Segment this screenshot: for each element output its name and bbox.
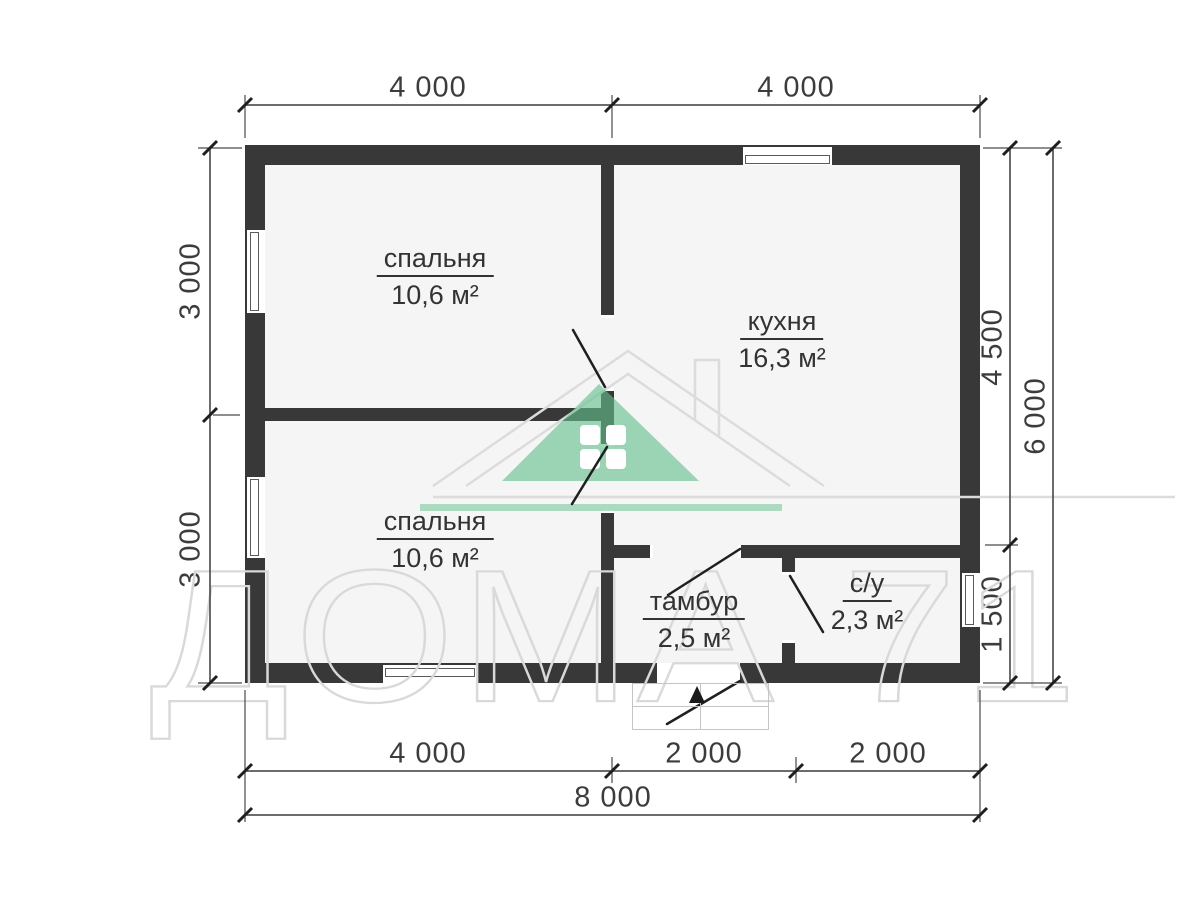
window-pane: [385, 668, 475, 677]
dim-bottom-2000a: 2 000: [665, 738, 743, 771]
jamb-cap: [601, 388, 614, 391]
wall-bottom: [245, 663, 980, 683]
dim-top-right: 4 000: [757, 72, 835, 105]
dim-right-6000: 6 000: [1020, 377, 1053, 455]
window-bedroom1-left: [247, 230, 265, 313]
window-bedroom2-bottom: [383, 665, 477, 683]
window-bedroom2-left: [247, 477, 265, 558]
wall-bedroom2-lower: [601, 510, 614, 663]
dim-right-1500: 1 500: [977, 575, 1010, 653]
room-name: спальня: [377, 506, 494, 540]
room-name: спальня: [377, 243, 494, 277]
jamb-cap: [782, 640, 795, 643]
room-area: 16,3 м²: [738, 343, 826, 374]
wall-tambur-su-lower: [782, 640, 795, 663]
entrance-arrow-icon: [689, 686, 705, 703]
room-label-tambur: тамбур 2,5 м²: [643, 586, 745, 654]
window-pane: [250, 479, 259, 556]
jamb-cap: [601, 315, 614, 318]
jamb-cap: [738, 545, 741, 558]
jamb-cap: [650, 545, 653, 558]
room-area: 2,3 м²: [831, 605, 904, 636]
floorplan-canvas: ДОМА 71: [0, 0, 1200, 900]
dim-bottom-4000: 4 000: [389, 738, 467, 771]
wall-bedroom1-bedroom2: [265, 408, 614, 421]
room-area: 10,6 м²: [391, 543, 479, 574]
room-name: тамбур: [643, 586, 745, 620]
room-label-bedroom2: спальня 10,6 м²: [377, 506, 494, 574]
dim-bottom-8000: 8 000: [574, 782, 652, 815]
room-label-kitchen: кухня 16,3 м²: [738, 306, 826, 374]
wall-bedroom1-kitchen-upper: [601, 165, 614, 318]
wall-kitchen-su: [738, 545, 960, 558]
jamb-cap: [601, 444, 614, 447]
wall-top: [245, 145, 980, 165]
window-kitchen-top: [743, 147, 832, 165]
room-area: 2,5 м²: [658, 623, 731, 654]
dim-right-4500: 4 500: [977, 308, 1010, 386]
window-pane: [965, 575, 974, 625]
dim-bottom-2000b: 2 000: [849, 738, 927, 771]
entrance-opening: [657, 663, 740, 683]
room-label-bedroom1: спальня 10,6 м²: [377, 243, 494, 311]
dim-top-left: 4 000: [389, 72, 467, 105]
wall-kitchen-tambur-left: [614, 545, 653, 558]
dim-left-upper: 3 000: [175, 242, 208, 320]
wall-left: [245, 145, 265, 683]
room-name: кухня: [741, 306, 824, 340]
room-label-su: с/у 2,3 м²: [831, 568, 904, 636]
window-pane: [745, 155, 830, 164]
room-name: с/у: [843, 568, 892, 602]
dim-left-lower: 3 000: [175, 510, 208, 588]
window-pane: [250, 232, 259, 311]
jamb-cap: [601, 510, 614, 513]
room-area: 10,6 м²: [391, 280, 479, 311]
porch-step-line: [633, 706, 768, 707]
jamb-cap: [782, 572, 795, 575]
